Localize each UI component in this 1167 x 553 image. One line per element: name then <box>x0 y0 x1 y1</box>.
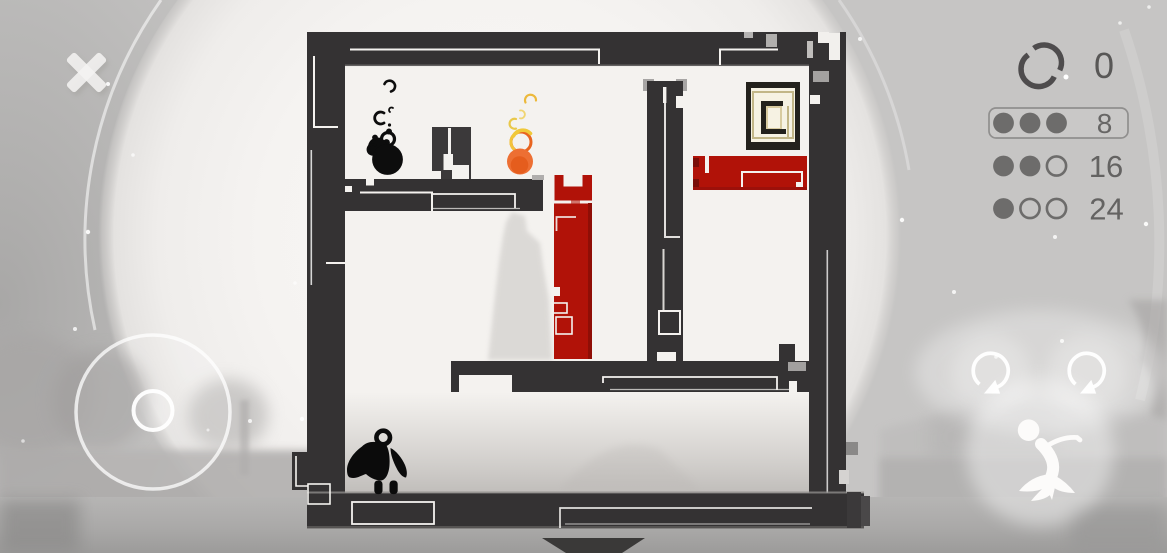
svg-text:16: 16 <box>1089 149 1123 184</box>
svg-text:0: 0 <box>1094 45 1114 86</box>
svg-text:24: 24 <box>1089 192 1123 227</box>
svg-text:8: 8 <box>1097 108 1113 139</box>
